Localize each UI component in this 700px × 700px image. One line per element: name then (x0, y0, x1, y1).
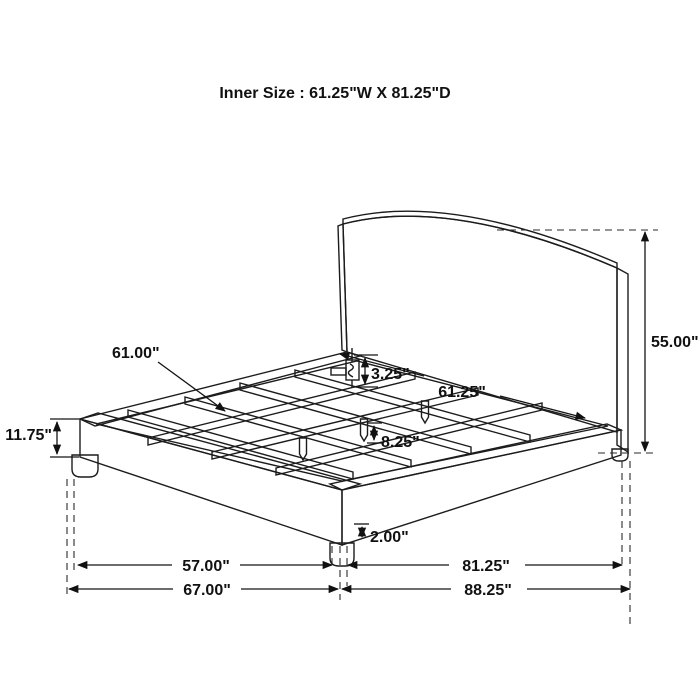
headboard-side-panel (617, 268, 628, 452)
extension-lines-left-leg (67, 479, 74, 598)
dim-label-under-clearance: 8.25" (381, 434, 420, 451)
dim-label-width-between-legs: 57.00" (182, 558, 230, 575)
bed-body (72, 211, 628, 566)
dim-label-slat-length: 61.00" (112, 345, 160, 362)
dim-label-side-rail-height: 11.75" (5, 427, 52, 444)
dim-label-bracket-height: 3.25" (371, 366, 410, 383)
dim-leader-slat-length (158, 362, 225, 411)
dim-label-overall-height: 55.00" (651, 334, 699, 351)
dim-label-overall-width: 67.00" (183, 582, 231, 599)
bed-dimension-diagram: Inner Size : 61.25"W X 81.25"D (0, 0, 700, 700)
rail-end-tab (331, 368, 346, 375)
dim-arrow-inner-width-start (340, 354, 344, 355)
figure-canvas: Inner Size : 61.25"W X 81.25"D (0, 0, 700, 700)
extension-lines-front-leg (332, 546, 347, 600)
dim-arrow-inner-width-end (581, 417, 585, 418)
figure-title: Inner Size : 61.25"W X 81.25"D (219, 85, 450, 102)
dim-label-inner-width: 61.25" (438, 384, 486, 401)
left-rail-top (80, 352, 360, 426)
bracket-hook (348, 364, 353, 377)
center-leg-1 (300, 438, 307, 460)
dimension-annotations (50, 230, 658, 626)
dim-label-leg-height: 2.00" (370, 529, 409, 546)
headboard-top-edge (343, 211, 617, 268)
dim-label-overall-depth: 88.25" (464, 582, 512, 599)
foot-rail-top (80, 413, 360, 490)
dim-ticks-rail-height (50, 419, 79, 457)
extension-lines-height (497, 230, 658, 453)
dim-label-depth-between-legs: 81.25" (462, 558, 510, 575)
extension-lines-right-leg (622, 461, 630, 626)
corner-leg-front (330, 543, 354, 566)
headboard-left-edge (338, 224, 347, 352)
